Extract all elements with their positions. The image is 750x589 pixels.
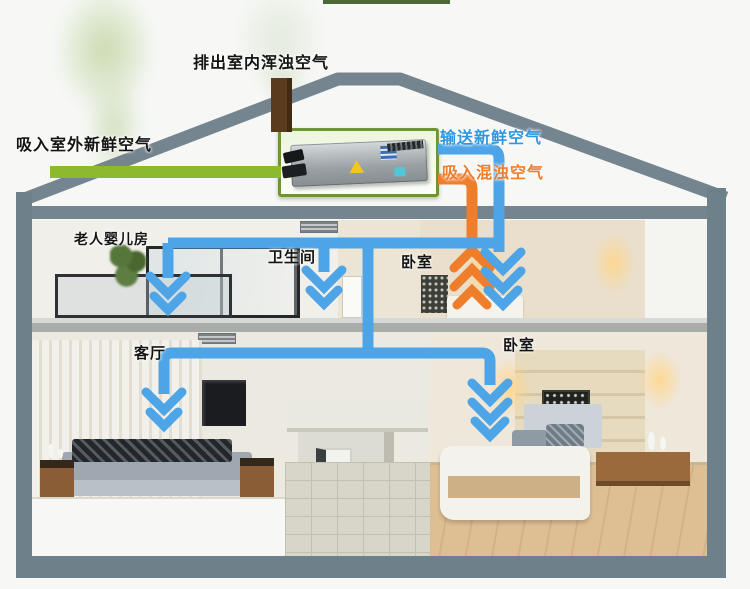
room-label-living-room: 客厅 [134, 342, 166, 363]
fresh-supply-label: 输送新鲜空气 [440, 124, 542, 148]
attic-beam [32, 206, 707, 219]
structure-and-ducts [0, 0, 750, 589]
outdoor-intake-label: 吸入室外新鲜空气 [16, 131, 152, 155]
stale-air-up-arrow-icon [454, 250, 490, 305]
room-label-elder-baby: 老人婴儿房 [74, 229, 149, 249]
ventilation-system-diagram: 排出室内浑浊空气 吸入室外新鲜空气 输送新鲜空气 吸入混浊空气 老人婴儿房 卫生… [0, 0, 750, 589]
stale-return-label: 吸入混浊空气 [442, 159, 544, 183]
supply-pipes [164, 149, 499, 394]
right-wall [707, 188, 726, 568]
room-label-bedroom-lower: 卧室 [503, 334, 535, 355]
exhaust-chimney-shade [287, 78, 292, 132]
floor-base [16, 556, 726, 578]
supply-ground-pipe [164, 353, 490, 394]
exhaust-air-label: 排出室内浑浊空气 [193, 49, 329, 73]
room-label-bathroom: 卫生间 [268, 246, 316, 267]
left-wall [16, 192, 32, 568]
room-label-bedroom-upper: 卧室 [401, 251, 433, 272]
